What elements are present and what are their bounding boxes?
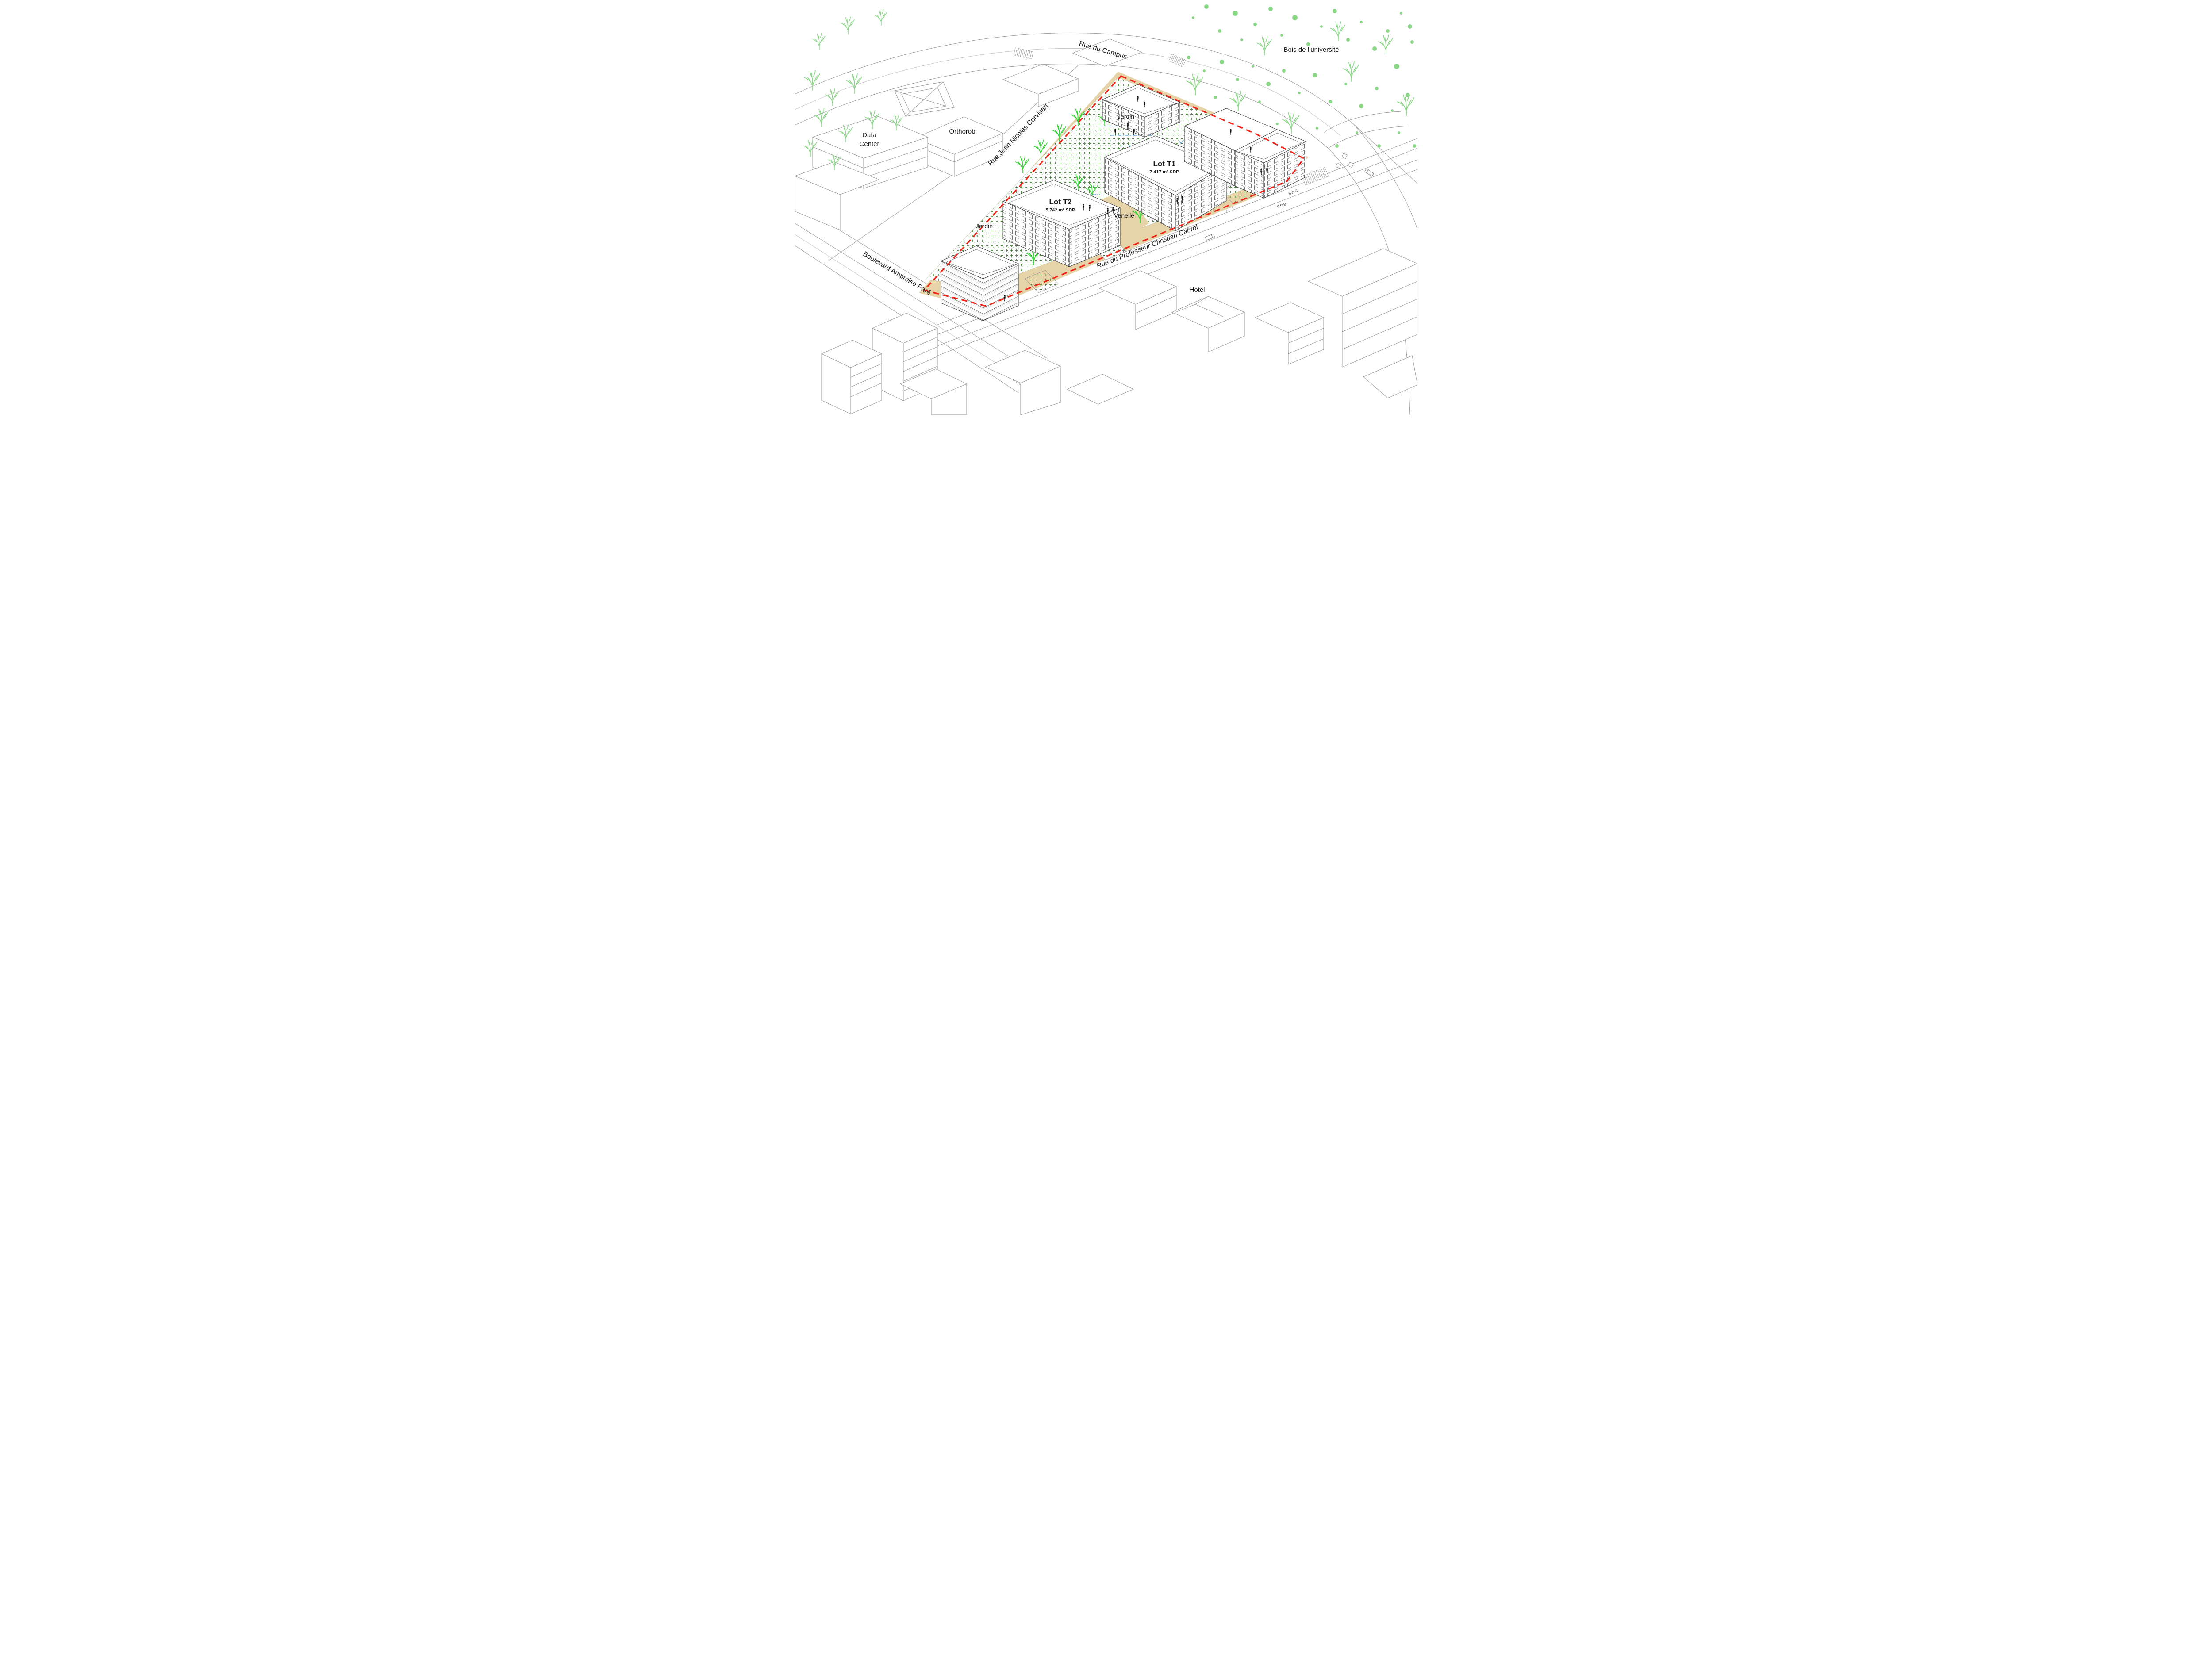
site-plan-drawing: Rue du Campus Bois de l’université Ortho… (795, 0, 1417, 415)
bois-access-road-1 (1324, 111, 1401, 133)
bus-vehicle-east (1364, 169, 1374, 176)
hotel-buildings (1099, 271, 1324, 364)
axonometric-plan-svg: Rue du Campus Bois de l’université Ortho… (795, 0, 1417, 415)
lot-t2-name: Lot T2 (1049, 198, 1071, 206)
east-road-outer (1353, 124, 1417, 230)
place-label-data-center-line2: Center (859, 140, 879, 148)
garden-label-north: Jardin (1117, 113, 1134, 120)
lot-t2-area: 5 742 m² SDP (1045, 207, 1075, 213)
context-towers-southwest (822, 313, 967, 415)
place-label-hotel: Hotel (1189, 286, 1205, 294)
place-label-data-center-line1: Data (862, 131, 876, 139)
venelle-label: Venelle (1114, 212, 1134, 219)
lot-t1-name: Lot T1 (1153, 160, 1175, 168)
lot-t1-area: 7 417 m² SDP (1149, 169, 1179, 175)
bus-vehicle-cabrol (1205, 234, 1215, 241)
plaza-square (895, 82, 954, 116)
intersection-signal-squares (1336, 153, 1353, 169)
place-label-orthorob: Orthorob (949, 128, 975, 135)
context-slabs-southeast (1308, 249, 1417, 398)
road-marking-bus-1: BUS (1275, 202, 1286, 210)
context-block-south-2 (1067, 374, 1133, 404)
garden-label-west: Jardin (975, 222, 992, 230)
place-label-bois: Bois de l’université (1283, 46, 1339, 54)
orthorob-building (915, 117, 1003, 176)
street-label-pare: Boulevard Ambroise Paré (861, 250, 932, 297)
